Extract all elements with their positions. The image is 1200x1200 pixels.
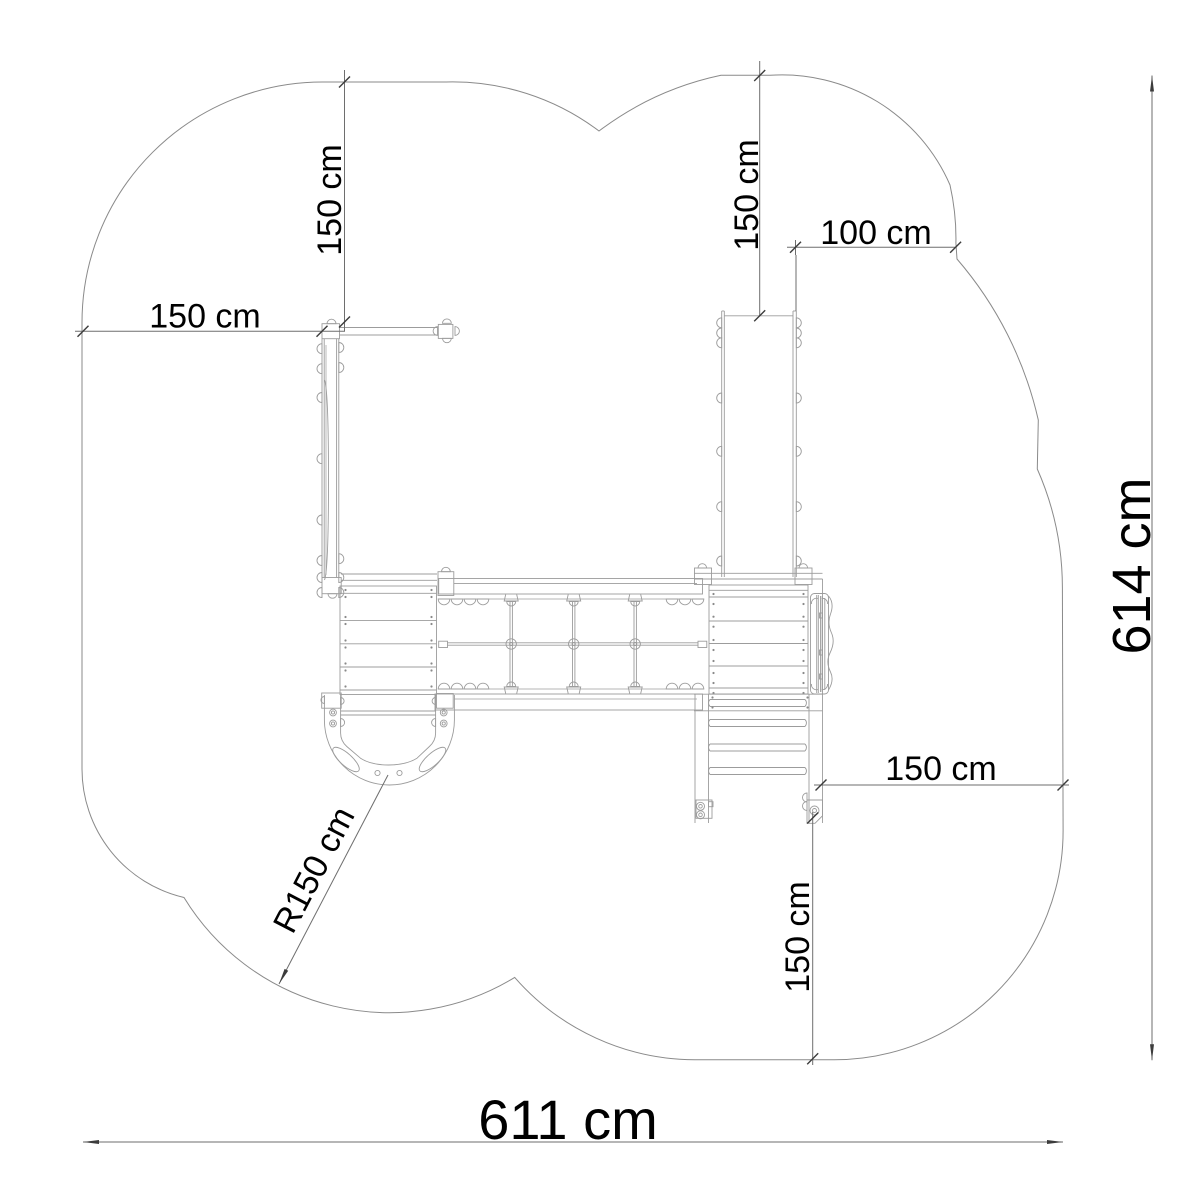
svg-text:150 cm: 150 cm bbox=[885, 750, 997, 788]
svg-text:611 cm: 611 cm bbox=[478, 1088, 657, 1151]
svg-text:150 cm: 150 cm bbox=[149, 298, 261, 336]
svg-text:150 cm: 150 cm bbox=[728, 139, 766, 251]
svg-text:100 cm: 100 cm bbox=[820, 214, 932, 252]
svg-text:150 cm: 150 cm bbox=[311, 144, 349, 256]
svg-text:614 cm: 614 cm bbox=[1102, 477, 1162, 654]
svg-text:150 cm: 150 cm bbox=[779, 881, 817, 993]
